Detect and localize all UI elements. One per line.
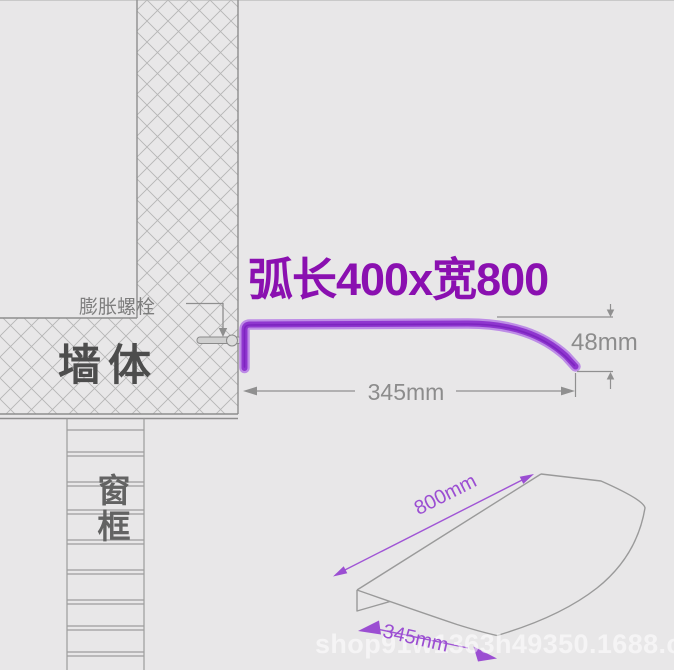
dimension-345mm-label: 345mm <box>357 379 455 406</box>
watermark-text: shop91w1363h49350.1688.com <box>315 629 674 660</box>
awning-product-diagram: shop91w1363h49350.1688.com 弧长400x宽800 膨胀… <box>0 0 674 670</box>
dimension-48mm-label: 48mm <box>571 329 638 357</box>
window-frame-label: 窗框 <box>87 473 135 545</box>
product-size-title: 弧长400x宽800 <box>248 243 548 308</box>
expansion-bolt-label: 膨胀螺栓 <box>79 292 155 319</box>
awning-profile <box>245 324 576 369</box>
wall-label: 墙体 <box>58 331 158 393</box>
iso-panel-outline <box>357 474 645 636</box>
